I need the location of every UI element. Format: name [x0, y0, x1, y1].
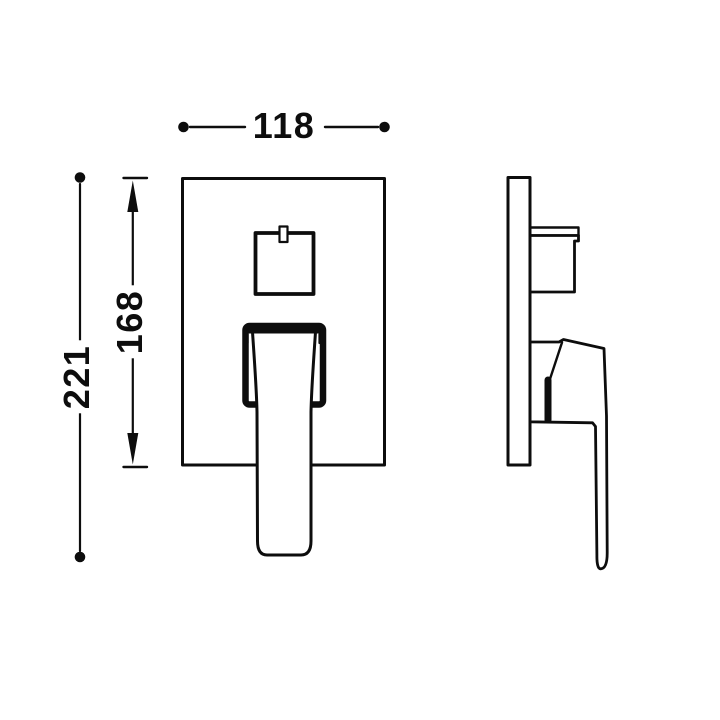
side-knob-body	[530, 236, 579, 293]
dim-total-height-label: 221	[59, 341, 95, 414]
side-lever-handle	[530, 340, 607, 569]
dim-118-dot-left	[178, 122, 189, 133]
dim-plate-height-label: 168	[112, 286, 148, 359]
front-lever-shaft	[253, 332, 316, 555]
dim-118-dot-right	[379, 122, 390, 133]
dim-width-label: 118	[249, 108, 320, 144]
mixer-drawing	[0, 0, 720, 720]
front-knob-indicator-tab	[280, 227, 288, 243]
technical-drawing-canvas: 118 221 168	[0, 0, 720, 720]
dim-221-dot-bottom	[75, 552, 86, 563]
side-plate	[508, 178, 530, 466]
front-view	[183, 179, 385, 556]
dim-221-dot-top	[75, 172, 86, 183]
side-view	[508, 178, 607, 569]
